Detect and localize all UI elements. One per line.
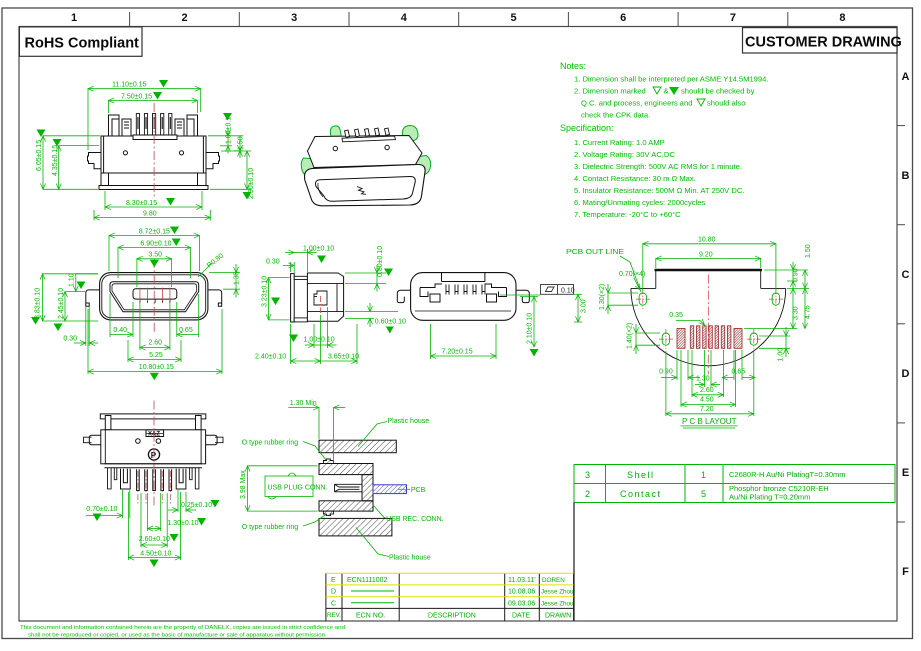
svg-text:E: E	[331, 577, 336, 584]
svg-text:PCB OUT LINE: PCB OUT LINE	[566, 249, 624, 256]
svg-text:10.08.06: 10.08.06	[508, 589, 535, 596]
svg-text:2: 2	[181, 12, 187, 24]
svg-text:10.80±0.15: 10.80±0.15	[139, 364, 174, 371]
svg-text:Notes:: Notes:	[560, 61, 586, 71]
svg-text:6.05±0.15: 6.05±0.15	[36, 140, 43, 171]
svg-text:1.30(×2): 1.30(×2)	[599, 284, 606, 310]
svg-text:3. Dielectric Strength: 500V A: 3. Dielectric Strength: 500V AC RMS for …	[574, 162, 742, 171]
svg-text:C: C	[902, 269, 910, 281]
svg-text:check the CPK data.: check the CPK data.	[581, 111, 650, 120]
svg-text:D: D	[331, 589, 336, 596]
svg-text:8.30±0.15: 8.30±0.15	[126, 200, 157, 207]
svg-text:shall not be reproduced or: shall not be reproduced or copied, or us…	[28, 632, 325, 638]
svg-text:10.80: 10.80	[698, 237, 716, 244]
svg-text:0.65: 0.65	[732, 369, 746, 376]
svg-text:5: 5	[701, 489, 706, 499]
svg-text:Q.C. and process, engineers an: Q.C. and process, engineers and	[581, 99, 692, 108]
svg-text:1.30±0.10: 1.30±0.10	[167, 520, 198, 527]
svg-text:D: D	[902, 368, 910, 380]
svg-text:3: 3	[585, 470, 590, 480]
svg-text:1.40(×2): 1.40(×2)	[627, 323, 634, 349]
svg-text:1.35: 1.35	[234, 271, 241, 285]
svg-text:CUSTOMER DRAWING: CUSTOMER DRAWING	[745, 35, 902, 51]
svg-text:1.30: 1.30	[696, 376, 710, 383]
svg-text:REV.: REV.	[327, 612, 341, 619]
svg-text:8: 8	[839, 12, 845, 24]
svg-text:2.60: 2.60	[700, 387, 714, 394]
svg-text:4: 4	[401, 12, 408, 24]
svg-text:0.35: 0.35	[669, 312, 683, 319]
svg-text:2.10±0.10: 2.10±0.10	[527, 313, 534, 344]
svg-text:1.10: 1.10	[69, 273, 76, 287]
svg-text:Shell: Shell	[627, 470, 655, 480]
svg-text:0.30: 0.30	[266, 259, 280, 266]
svg-text:A: A	[902, 71, 910, 83]
svg-text:should also: should also	[707, 99, 745, 108]
svg-text:3.30: 3.30	[793, 306, 800, 320]
svg-text:1.00±0.10: 1.00±0.10	[304, 337, 335, 344]
svg-text:3.23±0.10: 3.23±0.10	[262, 276, 269, 307]
svg-text:Contact: Contact	[620, 489, 662, 499]
svg-text:1. Dimension shall be interpre: 1. Dimension shall be interpreted per AS…	[574, 75, 768, 84]
svg-text:C: C	[331, 601, 336, 608]
svg-text:ECN1111002: ECN1111002	[347, 577, 388, 584]
svg-text:7.50±0.15: 7.50±0.15	[121, 93, 152, 100]
svg-text:USB REC. CONN.: USB REC. CONN.	[386, 516, 444, 523]
svg-text:&: &	[664, 87, 669, 96]
svg-text:3.00: 3.00	[581, 299, 588, 313]
svg-text:2. Voltage Rating: 30V AC,DC: 2. Voltage Rating: 30V AC,DC	[574, 150, 675, 159]
svg-text:9.80: 9.80	[143, 210, 157, 217]
svg-text:4. Contact Resistance: 30 m Ω: 4. Contact Resistance: 30 m Ω Max.	[574, 174, 696, 183]
svg-text:6.90±0.10: 6.90±0.10	[140, 240, 171, 247]
svg-text:Plastic house: Plastic house	[389, 554, 431, 561]
svg-text:0.70(×4): 0.70(×4)	[619, 271, 645, 278]
svg-text:DRAWN: DRAWN	[545, 613, 571, 620]
svg-text:4.50±0.10: 4.50±0.10	[140, 550, 171, 557]
svg-text:PCB: PCB	[411, 487, 426, 494]
svg-text:ECN NO.: ECN NO.	[356, 613, 385, 620]
svg-text:7.20: 7.20	[700, 406, 714, 413]
svg-text:0.10: 0.10	[561, 287, 575, 294]
svg-text:O type rubber ring: O type rubber ring	[242, 439, 299, 446]
svg-text:F: F	[902, 566, 909, 578]
svg-text:This document and informati: This document and information contained …	[20, 625, 345, 631]
svg-text:0.65: 0.65	[179, 327, 193, 334]
svg-text:2.60: 2.60	[148, 340, 162, 347]
svg-text:7.20±0.15: 7.20±0.15	[442, 348, 473, 355]
svg-text:2. Dimension marked: 2. Dimension marked	[574, 87, 646, 96]
svg-text:3.65±0.10: 3.65±0.10	[328, 354, 359, 361]
svg-text:DESCRIPTION: DESCRIPTION	[428, 613, 476, 620]
svg-text:E: E	[902, 467, 909, 479]
svg-text:0.30: 0.30	[63, 336, 77, 343]
svg-text:2.60±0.10: 2.60±0.10	[139, 536, 170, 543]
svg-text:1.50: 1.50	[238, 136, 245, 150]
svg-text:0.40: 0.40	[113, 327, 127, 334]
svg-text:RoHS Compliant: RoHS Compliant	[25, 36, 140, 52]
svg-text:Plastic house: Plastic house	[388, 418, 430, 425]
svg-text:Jesse Zhou: Jesse Zhou	[541, 601, 574, 608]
svg-text:5. Insulator Resistance: 500M: 5. Insulator Resistance: 500M Ω Min. AT …	[574, 186, 744, 195]
svg-text:9.20: 9.20	[699, 251, 713, 258]
svg-text:Jesse Zhou: Jesse Zhou	[541, 589, 574, 596]
svg-text:8.72±0.15: 8.72±0.15	[139, 229, 170, 236]
svg-text:6. Mating/Unmating cycles: 200: 6. Mating/Unmating cycles: 2000cycles	[574, 198, 705, 207]
svg-text:0.70±0.10: 0.70±0.10	[86, 506, 117, 513]
svg-text:6: 6	[620, 12, 626, 24]
svg-text:3.50: 3.50	[148, 252, 162, 259]
svg-text:0.60±0.10: 0.60±0.10	[375, 319, 406, 326]
svg-text:11.10±0.15: 11.10±0.15	[112, 82, 147, 89]
svg-text:O type rubber ring: O type rubber ring	[242, 524, 299, 531]
svg-text:0.90: 0.90	[793, 268, 800, 282]
svg-text:2.45±0.10: 2.45±0.10	[58, 288, 65, 319]
svg-text:P C B LAYOUT: P C B LAYOUT	[682, 416, 737, 426]
svg-text:1: 1	[71, 12, 77, 24]
svg-text:1. Current Rating: 1.0 AMP: 1. Current Rating: 1.0 AMP	[574, 138, 665, 147]
svg-text:5: 5	[510, 12, 516, 24]
svg-text:5.25: 5.25	[149, 352, 163, 359]
svg-text:1.00: 1.00	[778, 348, 785, 362]
svg-text:DATE: DATE	[512, 613, 530, 620]
svg-text:3.98 Max: 3.98 Max	[240, 470, 247, 499]
svg-text:4.75: 4.75	[805, 305, 812, 319]
svg-text:1.50: 1.50	[805, 244, 812, 258]
svg-text:2.40±0.10: 2.40±0.10	[255, 354, 286, 361]
svg-text:Specification:: Specification:	[560, 123, 614, 133]
svg-text:09.03.06: 09.03.06	[508, 601, 535, 608]
svg-text:11.03.11': 11.03.11'	[508, 577, 536, 584]
svg-text:0.80±0.10: 0.80±0.10	[377, 246, 384, 277]
svg-text:3: 3	[291, 12, 297, 24]
svg-text:2: 2	[585, 489, 590, 499]
svg-text:B: B	[902, 170, 910, 182]
svg-text:1.00±0.10: 1.00±0.10	[303, 246, 334, 253]
svg-text:DOREN: DOREN	[542, 577, 565, 584]
svg-text:USB PLUG CONN.: USB PLUG CONN.	[268, 485, 328, 492]
svg-text:should be checked by: should be checked by	[681, 87, 755, 96]
svg-text:1: 1	[701, 470, 706, 480]
svg-text:0.25±0.10: 0.25±0.10	[181, 502, 212, 509]
svg-text:7. Temperature: -20°C to +60°C: 7. Temperature: -20°C to +60°C	[574, 210, 681, 219]
svg-text:4.50: 4.50	[700, 397, 714, 404]
svg-text:C2680R-H Au/Ni PlatingT=0.30: C2680R-H Au/Ni PlatingT=0.30mm	[729, 470, 846, 479]
svg-text:Au/Ni Plating T=0.20mm: Au/Ni Plating T=0.20mm	[729, 493, 810, 502]
svg-text:4.35±0.15: 4.35±0.15	[52, 145, 59, 176]
svg-text:1.30 Min: 1.30 Min	[290, 400, 317, 407]
svg-text:3.83±0.10: 3.83±0.10	[35, 288, 42, 319]
svg-text:7: 7	[730, 12, 736, 24]
